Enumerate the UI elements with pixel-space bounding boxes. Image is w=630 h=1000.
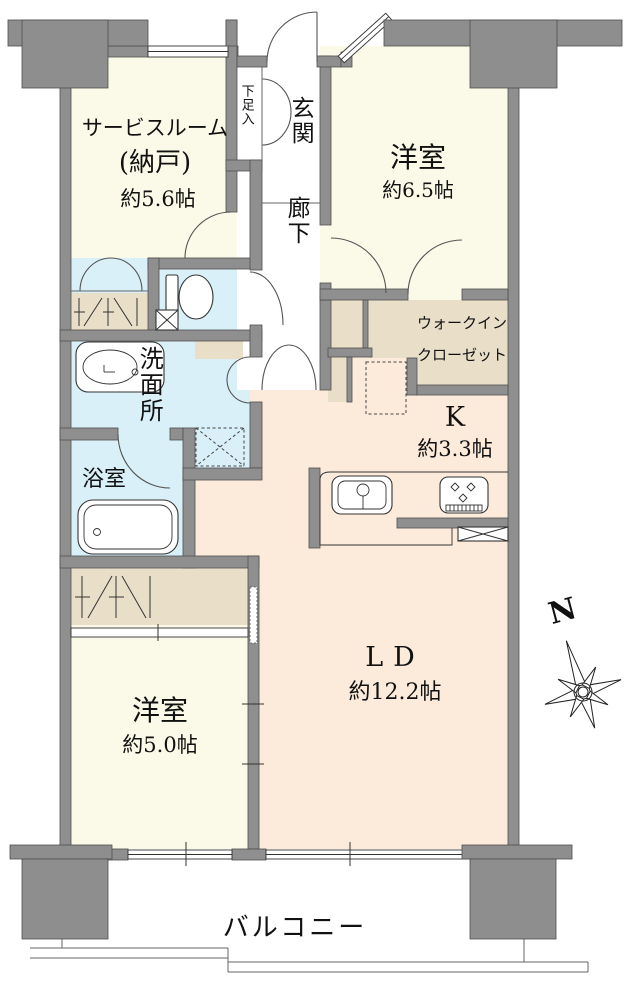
bedroom-b-label: 洋室 bbox=[132, 696, 188, 725]
kitchen-sink-icon bbox=[332, 476, 392, 514]
balcony-edge bbox=[30, 939, 588, 972]
living-dining-label: LD bbox=[365, 644, 425, 672]
kitchen-label: K bbox=[445, 404, 465, 432]
pillar-bottom-left bbox=[22, 859, 108, 939]
service-room-sub-label: (納戸) bbox=[119, 150, 191, 177]
bedroom-a-size: 約6.5帖 bbox=[382, 180, 454, 201]
hallway-label: 廊下 bbox=[284, 196, 308, 246]
living-nook-floor bbox=[195, 468, 262, 556]
service-room-label: サービスルーム bbox=[82, 117, 228, 139]
bedroom-b-size: 約5.0帖 bbox=[122, 734, 197, 756]
floor-plan-drawing bbox=[0, 0, 630, 1000]
walk-in-closet-label-2: クローゼット bbox=[417, 348, 507, 364]
living-dining-size: 約12.2帖 bbox=[349, 681, 442, 704]
balcony-label: バルコニー bbox=[223, 915, 367, 942]
pillar-top-left bbox=[22, 20, 108, 88]
bedroom-a-label: 洋室 bbox=[390, 143, 446, 172]
washroom-label: 洗面所 bbox=[136, 346, 161, 424]
compass-icon bbox=[528, 628, 630, 742]
floor-plan: サービスルーム (納戸) 約5.6帖 下足入 玄関 廊下 洋室 約6.5帖 ウォ… bbox=[0, 0, 630, 1000]
pillar-bottom-right bbox=[470, 859, 556, 939]
bathtub-icon bbox=[78, 500, 178, 554]
hall-storage-a bbox=[328, 300, 363, 348]
pipe-space-kitchen-icon bbox=[458, 527, 508, 541]
walk-in-closet-label-1: ウォークイン bbox=[417, 316, 507, 332]
pillar-top-right bbox=[470, 20, 557, 88]
closet-sliding-track bbox=[71, 628, 248, 637]
washroom-counter bbox=[195, 341, 243, 359]
service-room-size: 約5.6帖 bbox=[120, 188, 195, 210]
entrance-label: 玄関 bbox=[288, 96, 312, 146]
stove-icon bbox=[440, 477, 488, 513]
kitchen-size: 約3.3帖 bbox=[417, 438, 492, 460]
bedroom-b-closet-right bbox=[162, 568, 248, 625]
bathroom-label: 浴室 bbox=[82, 468, 126, 491]
sliding-door-panel bbox=[250, 587, 257, 643]
shoe-cabinet-label: 下足入 bbox=[239, 84, 253, 126]
pipe-space-icon bbox=[156, 310, 178, 330]
